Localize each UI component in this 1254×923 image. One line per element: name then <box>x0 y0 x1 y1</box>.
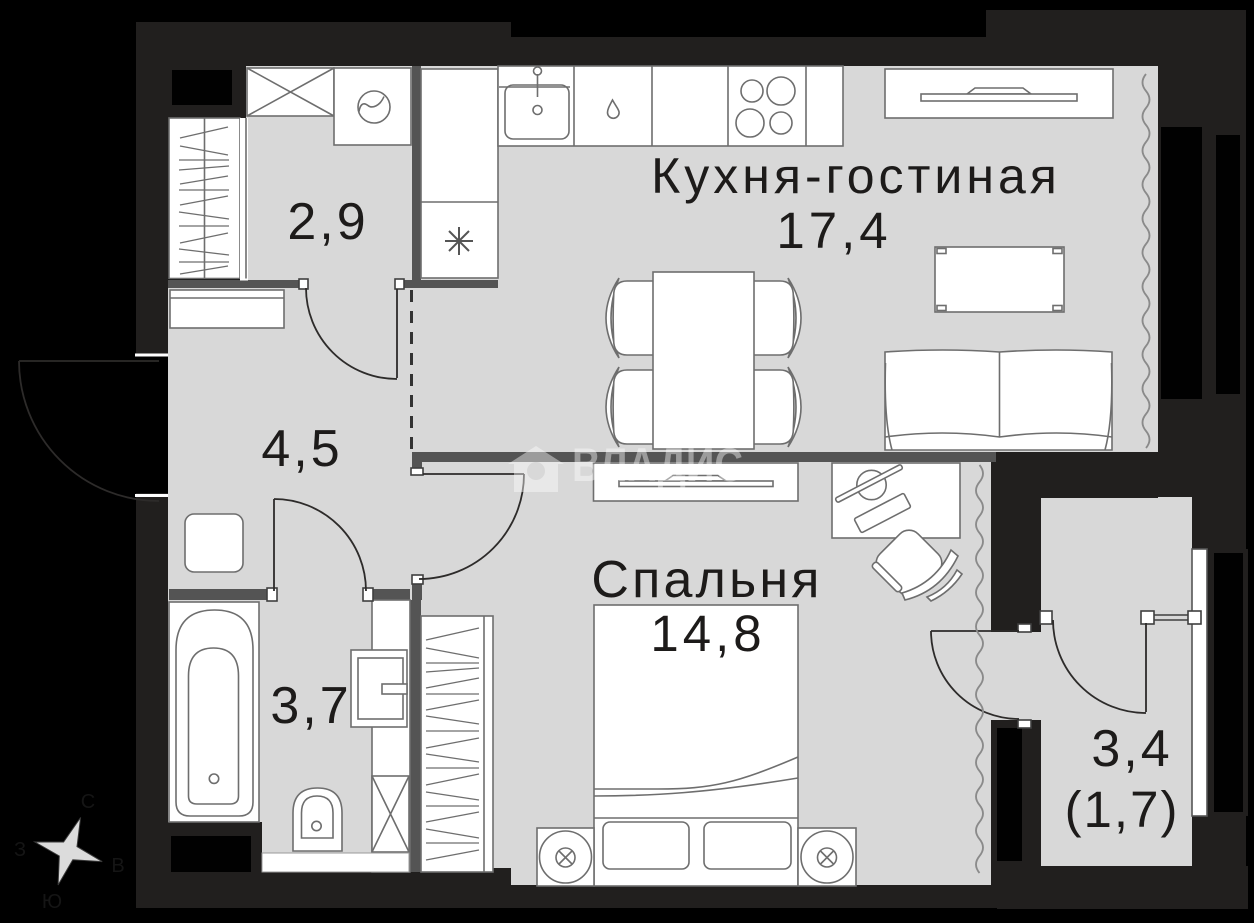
svg-text:17,4: 17,4 <box>776 202 891 259</box>
svg-text:Ю: Ю <box>42 891 62 913</box>
svg-text:Кухня-гостиная: Кухня-гостиная <box>651 148 1061 204</box>
svg-text:3,7: 3,7 <box>270 677 351 735</box>
svg-text:ВЛАДИС: ВЛАДИС <box>572 438 743 491</box>
svg-text:(1,7): (1,7) <box>1065 781 1180 838</box>
svg-text:14,8: 14,8 <box>650 605 765 662</box>
svg-text:С: С <box>81 791 95 813</box>
svg-text:3,4: 3,4 <box>1091 720 1172 778</box>
svg-text:Спальня: Спальня <box>591 551 822 609</box>
svg-text:В: В <box>111 855 124 877</box>
svg-text:4,5: 4,5 <box>261 420 342 478</box>
svg-text:З: З <box>14 839 26 861</box>
svg-text:2,9: 2,9 <box>287 193 368 251</box>
